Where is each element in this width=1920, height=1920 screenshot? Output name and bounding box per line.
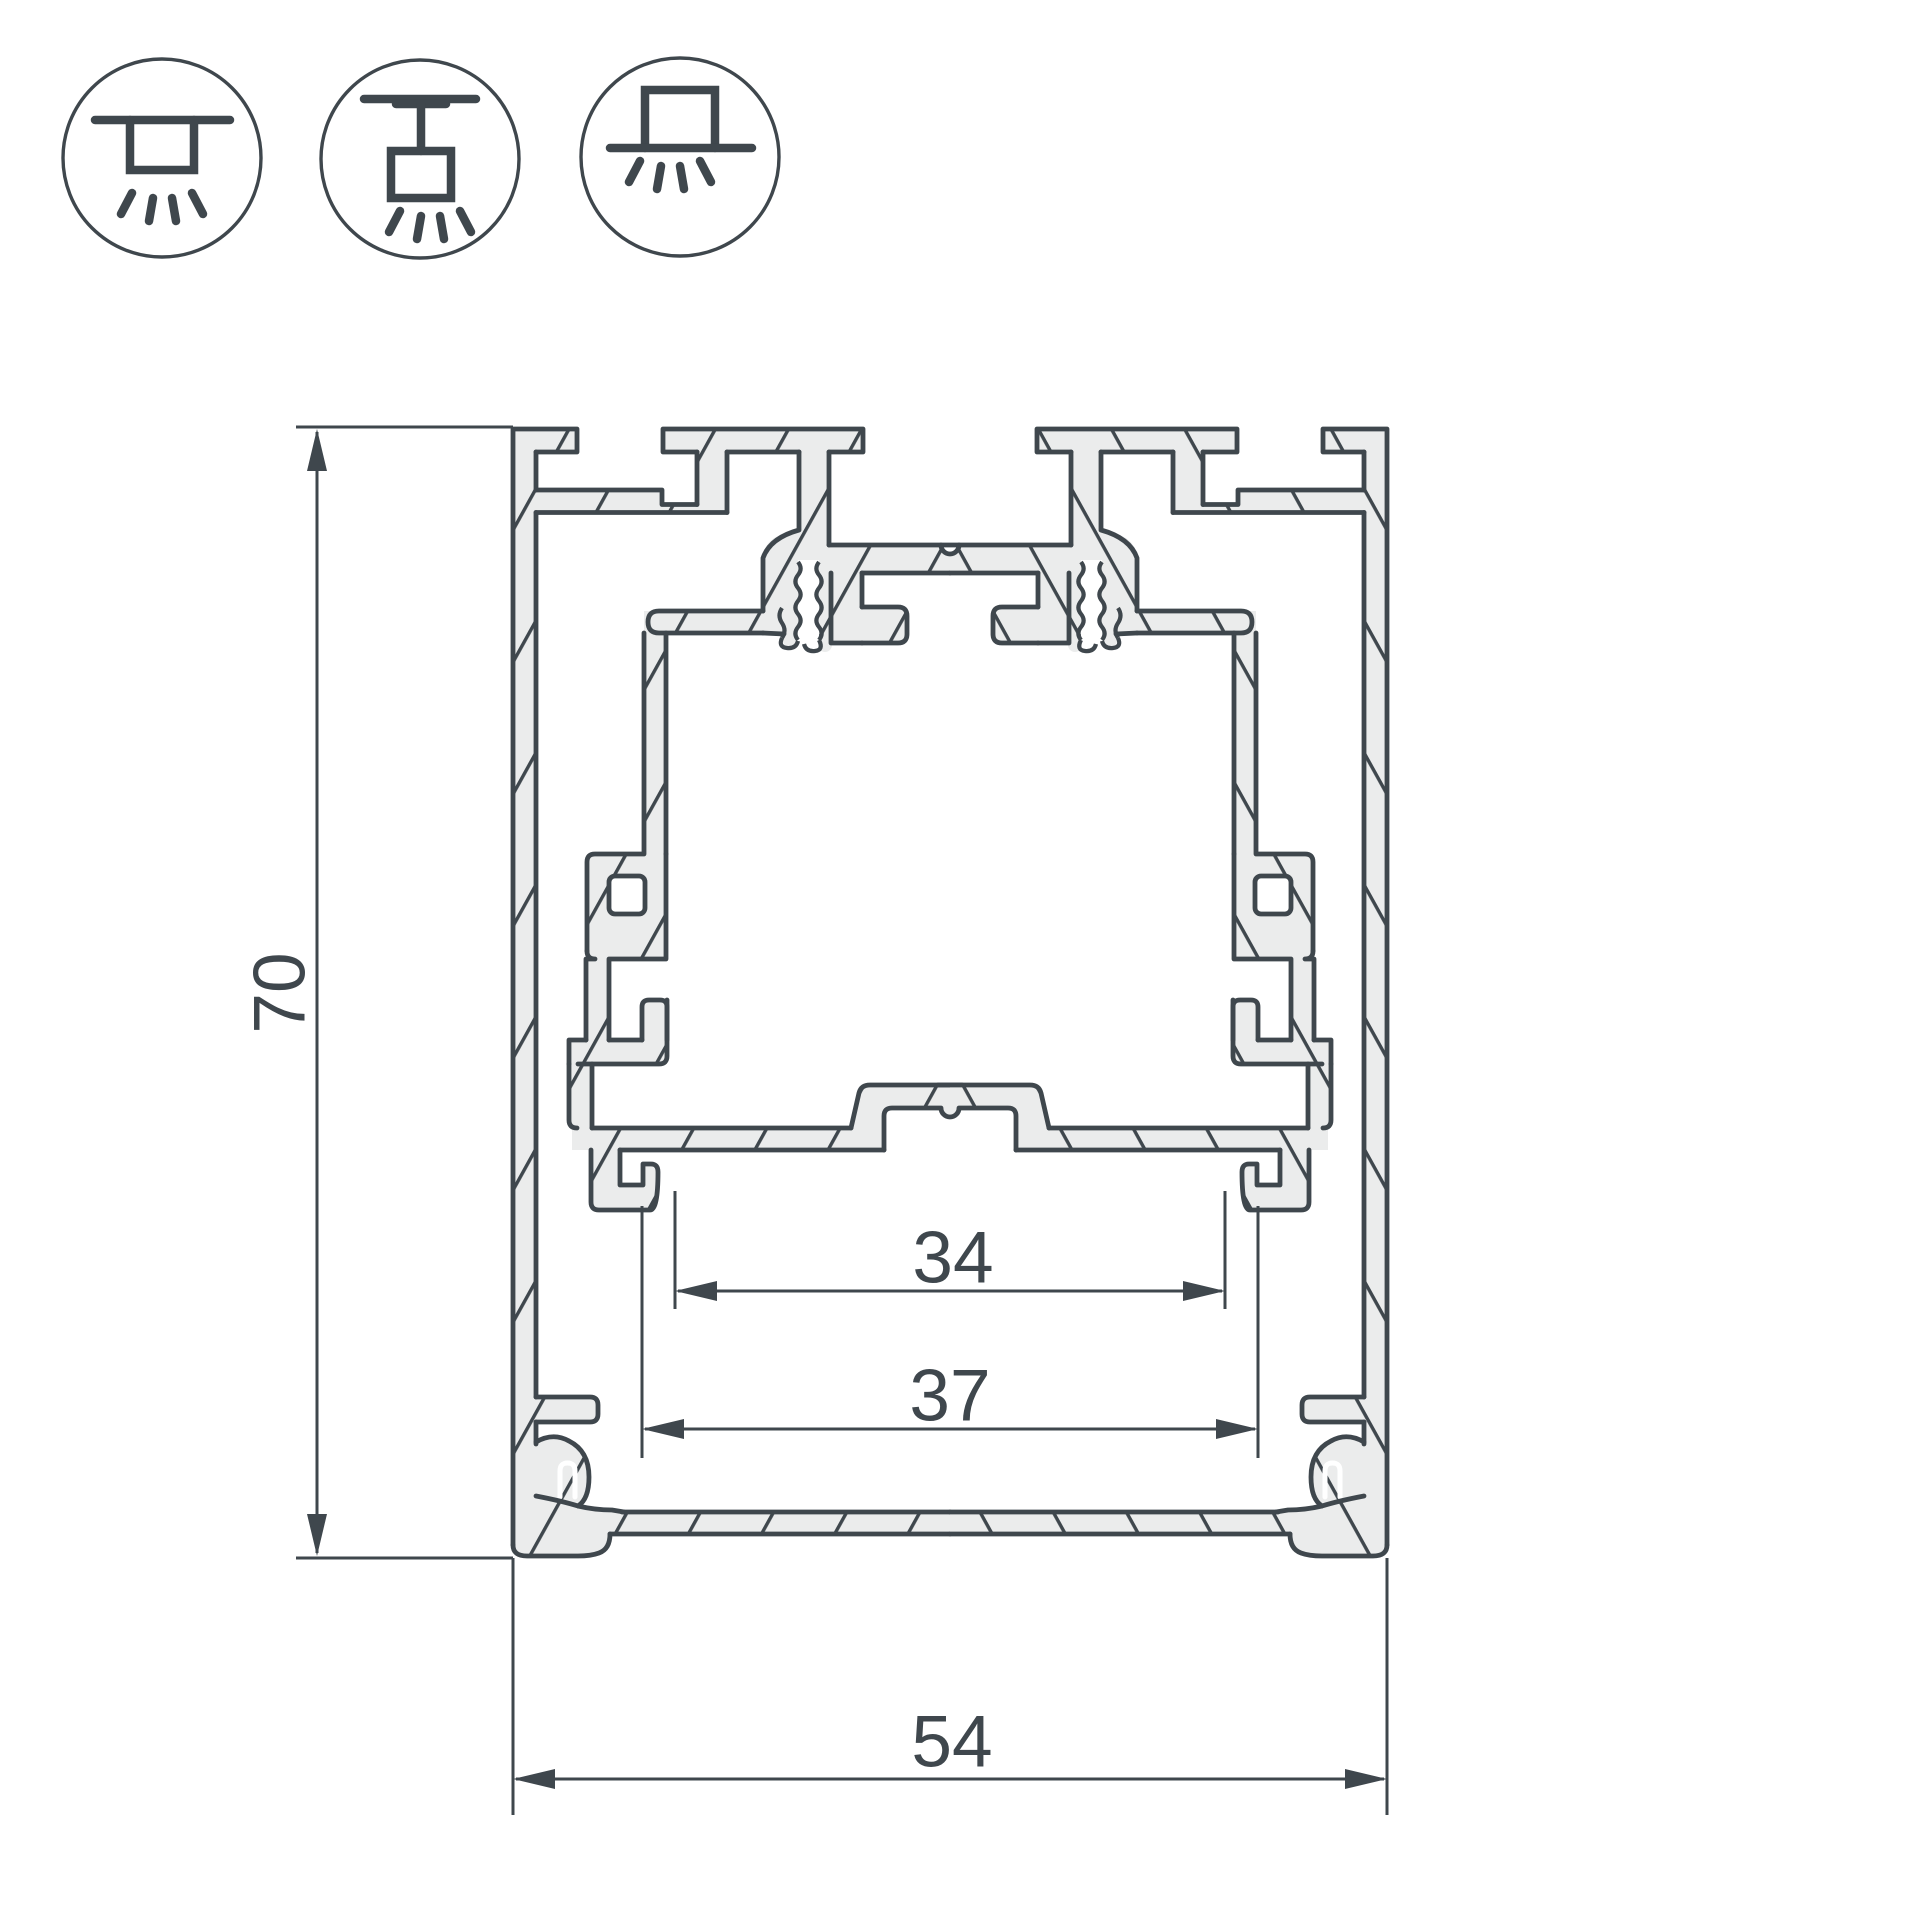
svg-text:54: 54 [911, 1702, 992, 1783]
svg-text:34: 34 [912, 1218, 993, 1299]
svg-text:37: 37 [909, 1356, 990, 1437]
svg-text:70: 70 [240, 952, 321, 1033]
